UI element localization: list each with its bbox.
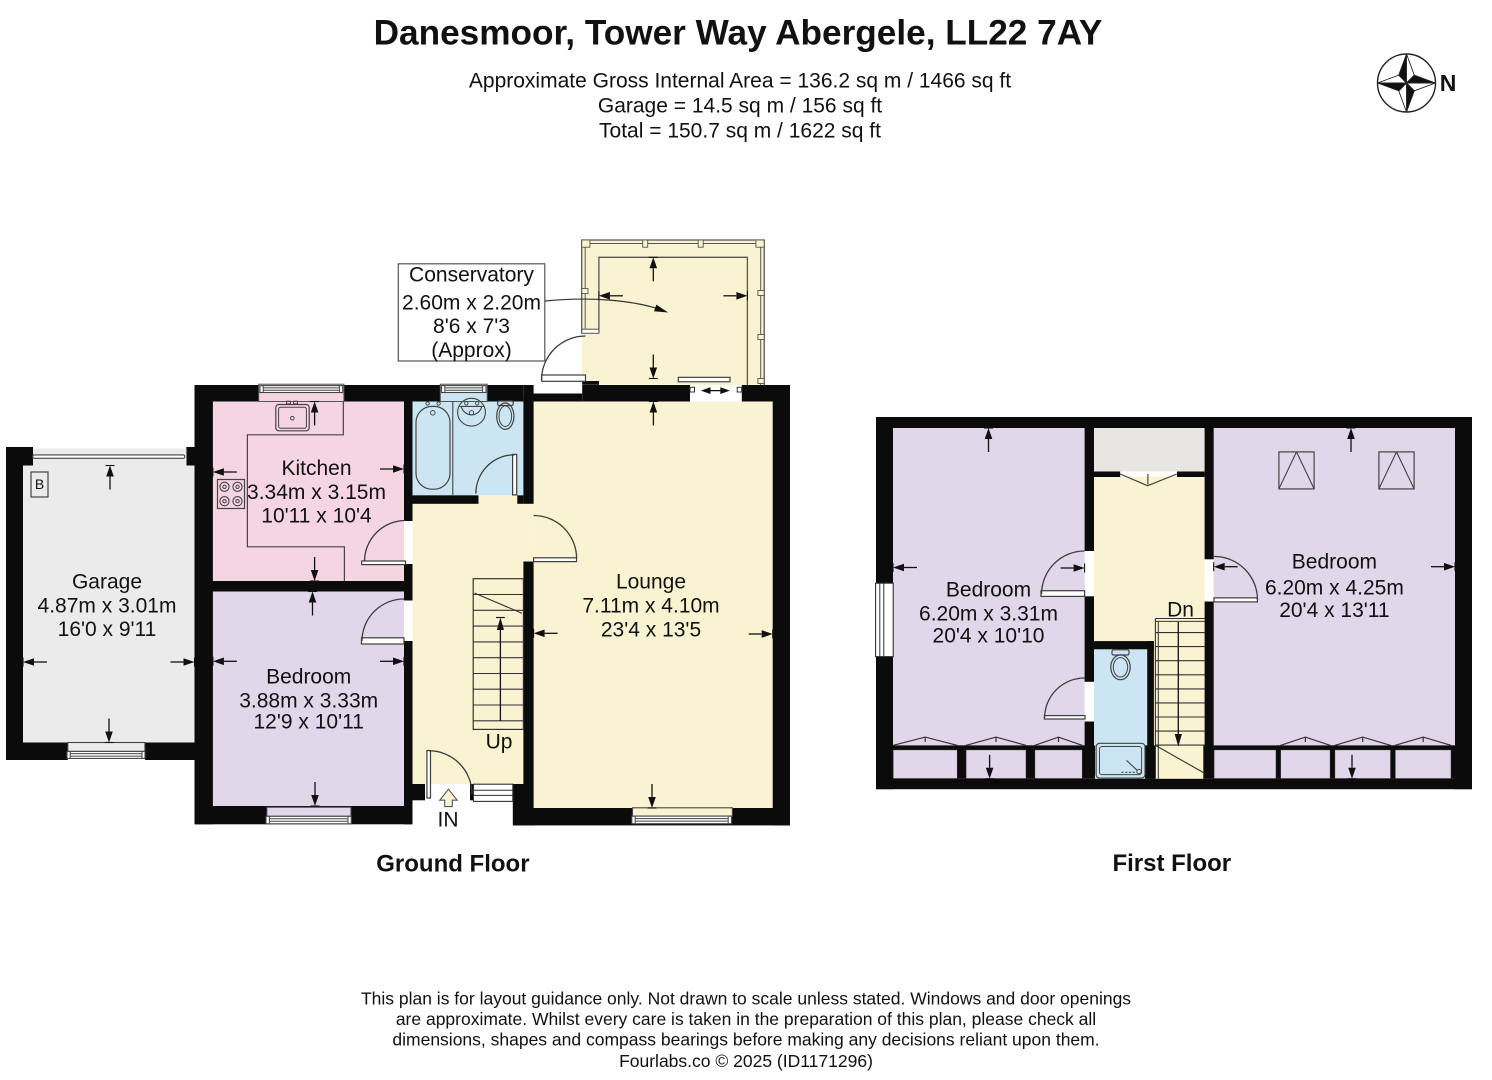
svg-text:(Approx): (Approx) <box>431 339 512 362</box>
svg-text:Up: Up <box>486 731 513 754</box>
svg-text:Approximate Gross Internal Are: Approximate Gross Internal Area = 136.2 … <box>469 70 1011 93</box>
svg-text:8'6 x 7'3: 8'6 x 7'3 <box>433 315 510 338</box>
svg-text:16'0 x 9'11: 16'0 x 9'11 <box>58 618 157 641</box>
svg-text:12'9 x 10'11: 12'9 x 10'11 <box>254 711 364 734</box>
svg-text:Garage: Garage <box>72 571 142 594</box>
svg-text:6.20m x 3.31m: 6.20m x 3.31m <box>919 603 1058 626</box>
svg-text:7.11m x 4.10m: 7.11m x 4.10m <box>582 595 719 618</box>
svg-text:dimensions, shapes and compass: dimensions, shapes and compass bearings … <box>392 1030 1099 1050</box>
svg-text:are approximate. Whilst every: are approximate. Whilst every care is ta… <box>396 1009 1096 1029</box>
svg-text:Bedroom: Bedroom <box>946 578 1031 601</box>
svg-text:20'4 x 10'10: 20'4 x 10'10 <box>933 625 1045 648</box>
svg-text:Kitchen: Kitchen <box>281 457 351 480</box>
svg-text:Fourlabs.co © 2025 (ID1171296): Fourlabs.co © 2025 (ID1171296) <box>619 1051 873 1071</box>
svg-text:2.60m x 2.20m: 2.60m x 2.20m <box>402 291 541 314</box>
svg-text:4.87m x 3.01m: 4.87m x 3.01m <box>38 595 177 618</box>
svg-text:Dn: Dn <box>1167 599 1194 622</box>
svg-text:N: N <box>1440 70 1457 96</box>
svg-text:6.20m x 4.25m: 6.20m x 4.25m <box>1265 577 1404 600</box>
svg-text:Ground Floor: Ground Floor <box>376 850 529 877</box>
svg-text:Total = 150.7 sq m / 1622 sq f: Total = 150.7 sq m / 1622 sq ft <box>599 119 881 142</box>
svg-text:3.34m x 3.15m: 3.34m x 3.15m <box>247 481 386 504</box>
svg-text:First Floor: First Floor <box>1112 850 1231 877</box>
svg-text:IN: IN <box>438 809 459 832</box>
svg-text:Bedroom: Bedroom <box>266 666 351 689</box>
svg-text:B: B <box>35 476 44 492</box>
svg-text:10'11 x 10'4: 10'11 x 10'4 <box>261 505 372 528</box>
svg-text:20'4 x 13'11: 20'4 x 13'11 <box>1279 599 1389 622</box>
svg-text:Conservatory: Conservatory <box>409 264 534 287</box>
svg-text:3.88m x 3.33m: 3.88m x 3.33m <box>239 690 378 713</box>
svg-text:Danesmoor, Tower Way Abergele,: Danesmoor, Tower Way Abergele, LL22 7AY <box>374 14 1103 53</box>
svg-text:Lounge: Lounge <box>616 571 686 594</box>
svg-text:Garage = 14.5 sq m / 156 sq ft: Garage = 14.5 sq m / 156 sq ft <box>598 94 882 117</box>
svg-text:Bedroom: Bedroom <box>1292 551 1377 574</box>
svg-text:This plan is for layout guidan: This plan is for layout guidance only. N… <box>361 989 1131 1009</box>
svg-text:23'4 x 13'5: 23'4 x 13'5 <box>601 619 701 642</box>
